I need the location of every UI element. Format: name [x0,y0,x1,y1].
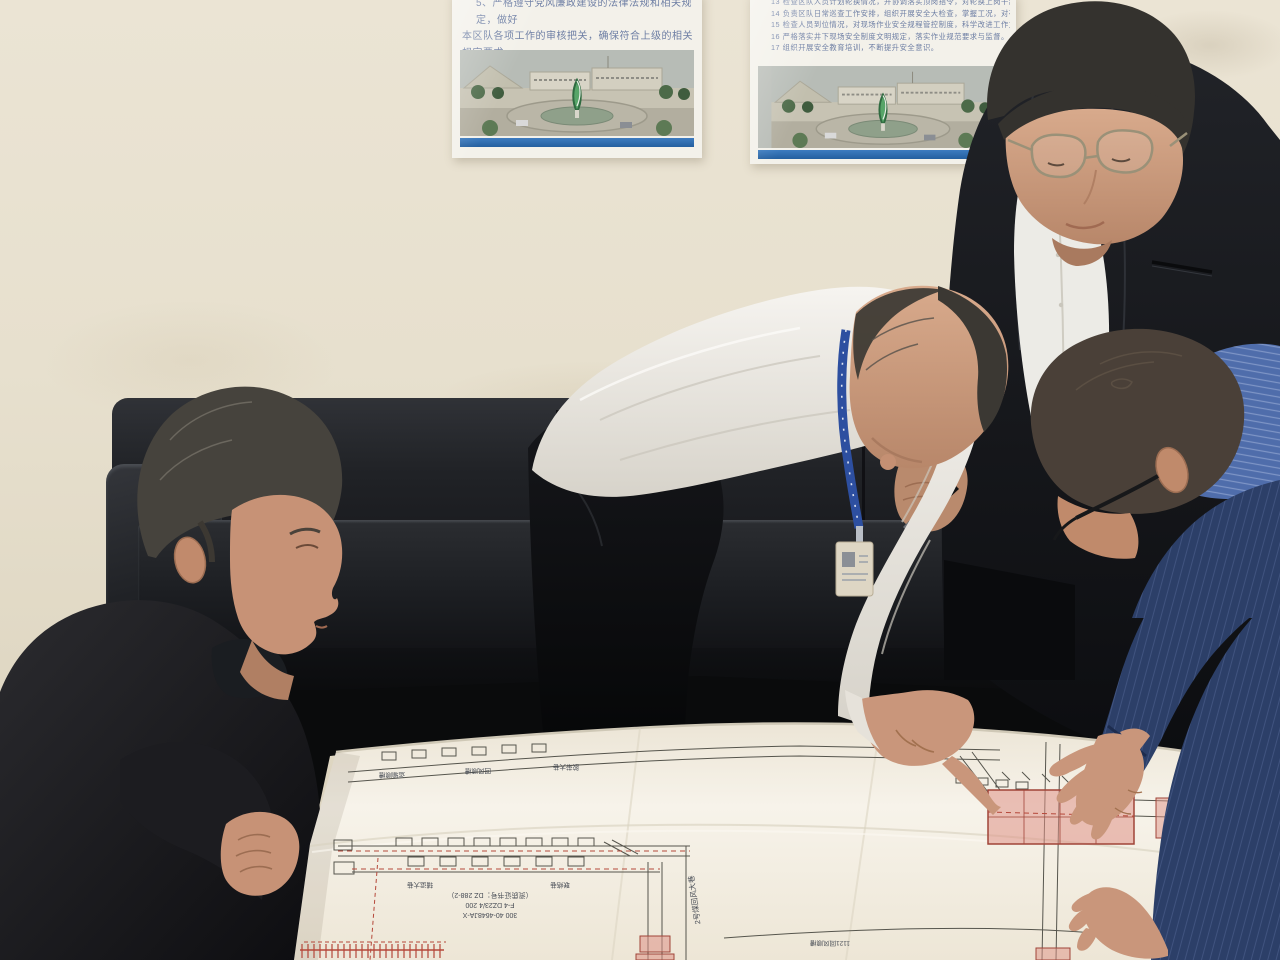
nose-tip [880,454,896,470]
mouth [316,626,327,628]
tunnel-label: 胶带大巷 [553,763,580,772]
scene-figures: 运输顺槽 回风顺槽 胶带大巷 辅运大巷 联络巷 （资质证书号：DZ 288-2）… [0,0,1280,960]
cert-line: （资质证书号：DZ 288-2） [447,891,532,900]
id-badge [836,542,873,596]
tunnel-label: 回风顺槽 [465,767,492,776]
man-center [528,286,1008,742]
cert-line: F-4 DZ23/4 200 [465,901,514,908]
ear [171,534,210,585]
cert-line: 300 40-4648JA-X [462,911,517,918]
tunnel-label: 联络巷 [550,881,570,890]
tunnel-label: 辅运大巷 [407,881,434,890]
badge-clip [856,526,863,542]
tunnel-label: 运输顺槽 [379,771,406,780]
face-profile [230,495,342,655]
shirt-button [1059,303,1063,307]
photo-scene: 5、严格遵守党风廉政建设的法律法规和相关规定，做好 本区队各项工作的审核把关，确… [0,0,1280,960]
badge-photo [842,552,855,567]
